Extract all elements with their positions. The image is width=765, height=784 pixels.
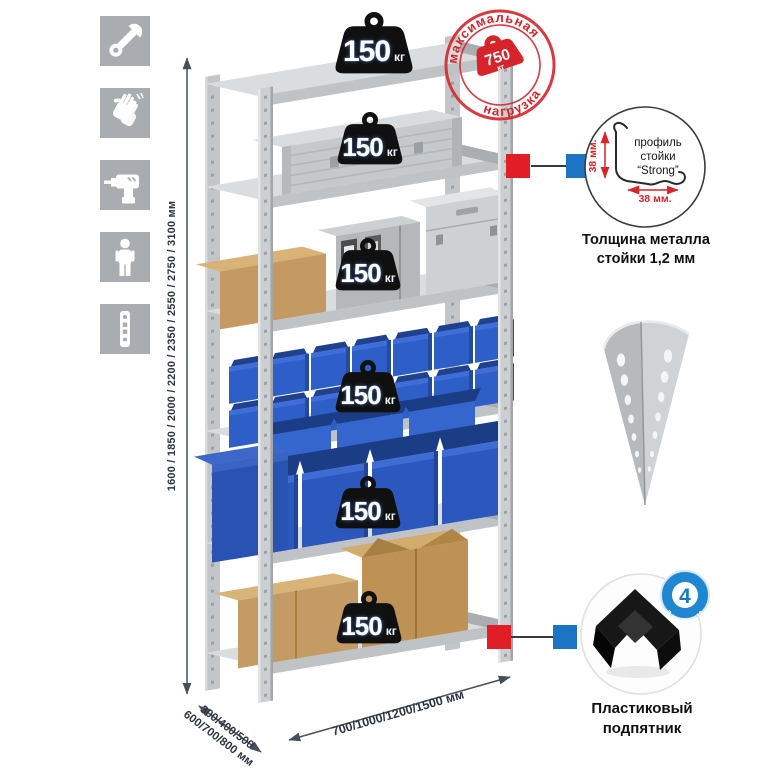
height-dimensions-label: 1600 / 1850 / 2000 / 2200 / 2350 / 2550 … — [166, 176, 178, 516]
load-value: 150 — [340, 380, 380, 411]
load-unit: кг — [385, 261, 396, 285]
drill-tile — [100, 160, 150, 210]
shelf-load-badge: 150кг — [321, 360, 415, 418]
foot-callout-connector — [487, 625, 577, 649]
profile-thickness-caption: Толщина металла стойки 1,2 мм — [563, 231, 729, 269]
wrench-icon — [100, 16, 150, 66]
load-unit: кг — [385, 383, 396, 407]
profile-label-3: “Strong” — [637, 165, 679, 177]
load-value: 150 — [342, 132, 382, 163]
profile-caption-line1: Толщина металла — [563, 231, 729, 250]
load-unit: кг — [386, 614, 397, 638]
foot-caption-line2: подпятник — [560, 719, 724, 739]
shelf-load-badge: 150кг — [323, 112, 417, 170]
load-value: 150 — [340, 496, 380, 527]
red-marker-square — [506, 154, 530, 178]
profile-detail-circle: 38 мм. 38 мм. профиль стойки “Strong” — [585, 107, 705, 227]
profile-callout-connector — [506, 154, 590, 178]
profile-dim-horizontal: 38 мм. — [638, 193, 671, 205]
person-tile — [100, 232, 150, 282]
included-count: 4 — [679, 585, 691, 608]
profile-caption-line2: стойки 1,2 мм — [563, 250, 729, 269]
load-unit: кг — [385, 499, 396, 523]
profile-label-1: профиль — [634, 137, 682, 149]
rack-profile-strip-icon — [100, 304, 150, 354]
gloves-tile — [100, 88, 150, 138]
foot-caption-line1: Пластиковый — [560, 699, 724, 719]
drill-icon — [100, 160, 150, 210]
foot-detail-circle: 4 в комплекте — [581, 571, 709, 694]
person-icon — [100, 232, 150, 282]
plastic-foot-caption: Пластиковый подпятник — [560, 699, 724, 738]
angle-post-image — [604, 322, 689, 505]
shelf-load-badge: 150кг — [322, 591, 416, 649]
shelf-load-badge: 150кг — [318, 12, 430, 80]
shelf-load-badge: 150кг — [321, 476, 415, 534]
shelf-load-badge: 150кг — [321, 238, 415, 296]
load-unit: кг — [387, 135, 398, 159]
load-value: 150 — [340, 258, 380, 289]
red-marker-square — [487, 625, 511, 649]
profile-strip-tile — [100, 304, 150, 354]
profile-label-2: стойки — [640, 151, 675, 163]
blue-marker-square — [553, 625, 577, 649]
shelving-rack-infographic: { "page": {"background": "#ffffff"}, "si… — [0, 0, 765, 765]
wrench-tile — [100, 16, 150, 66]
gloves-icon — [100, 88, 150, 138]
profile-dim-vertical: 38 мм. — [587, 139, 599, 172]
load-value: 150 — [343, 35, 390, 69]
load-unit: кг — [394, 40, 405, 64]
load-value: 150 — [341, 611, 381, 642]
